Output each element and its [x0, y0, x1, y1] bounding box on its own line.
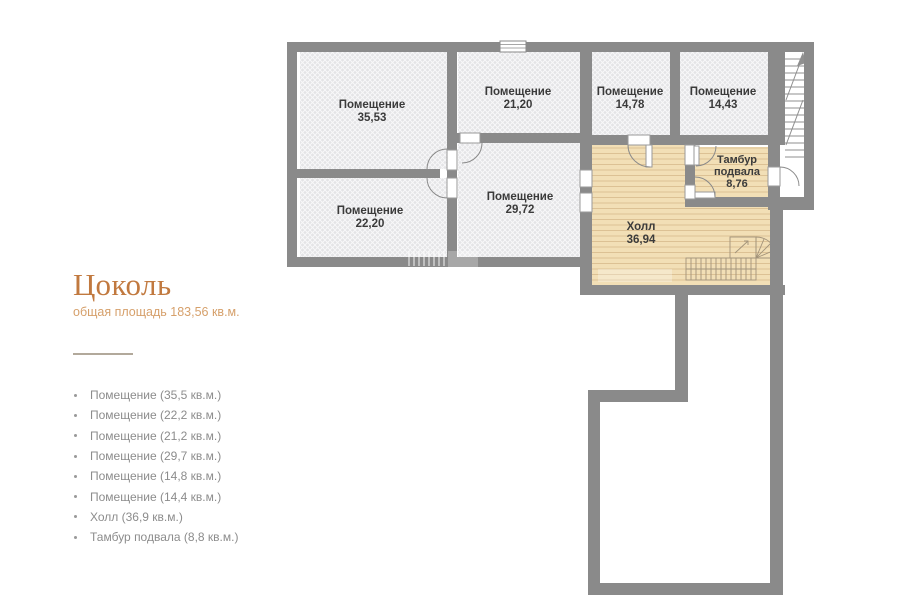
room-label: Помещение: [690, 86, 757, 98]
watermark: [598, 269, 672, 282]
floor-plan: Помещение 35,53 Помещение 21,20 Помещени…: [0, 0, 900, 600]
room-label: подвала: [714, 166, 761, 178]
vent-window: [500, 41, 526, 52]
room-label: Помещение: [485, 86, 552, 98]
room-area: 21,20: [504, 99, 533, 111]
room-label: Помещение: [597, 86, 664, 98]
room-label: Холл: [627, 221, 656, 233]
room-area: 29,72: [506, 204, 535, 216]
room-area: 14,43: [709, 99, 738, 111]
room-area: 22,20: [356, 218, 385, 230]
room-label: Помещение: [339, 99, 406, 111]
room-area: 14,78: [616, 99, 645, 111]
room-label: Помещение: [487, 191, 554, 203]
room-area: 8,76: [726, 178, 747, 190]
room-label: Помещение: [337, 205, 404, 217]
room-area: 35,53: [358, 112, 387, 124]
room-label: Тамбур: [717, 154, 757, 166]
watermark: [448, 251, 478, 267]
room-area: 36,94: [627, 234, 656, 246]
